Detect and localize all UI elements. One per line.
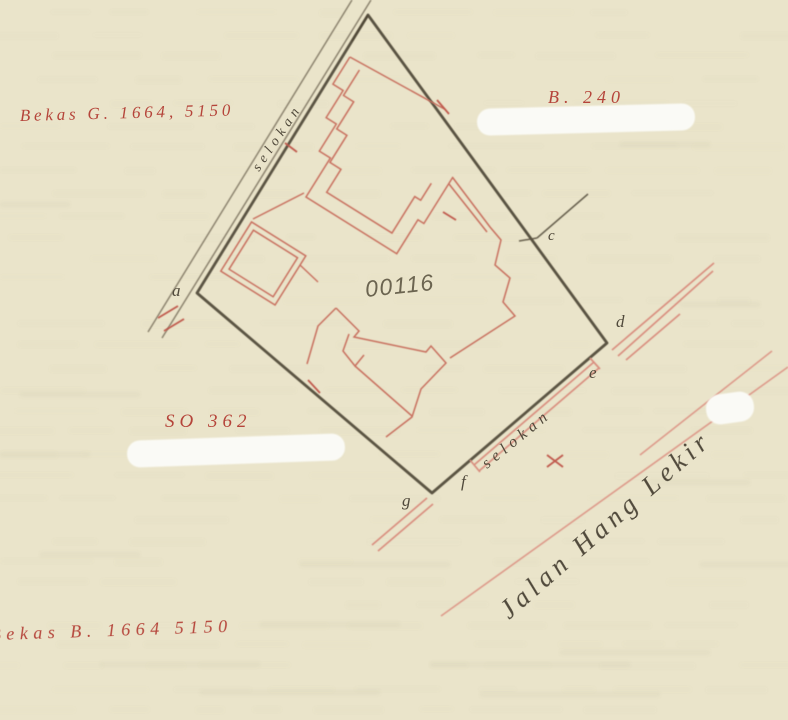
svg-text:g: g: [402, 491, 411, 510]
svg-text:a: a: [172, 281, 181, 300]
svg-text:e: e: [589, 363, 597, 382]
svg-text:SO 362: SO 362: [165, 411, 251, 432]
svg-text:d: d: [616, 312, 625, 331]
svg-text:c: c: [548, 228, 555, 244]
svg-text:B. 240: B. 240: [548, 87, 625, 107]
